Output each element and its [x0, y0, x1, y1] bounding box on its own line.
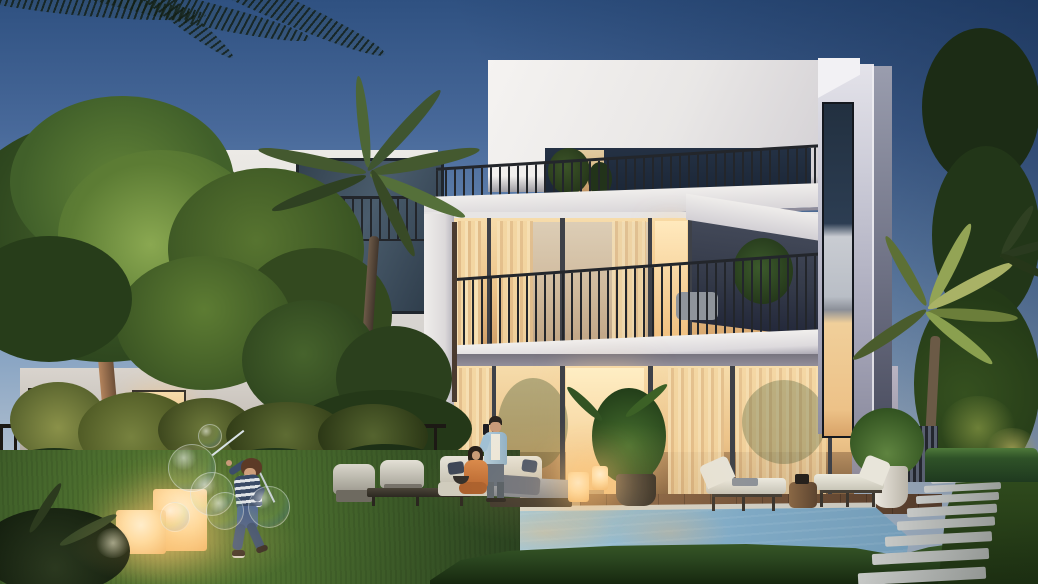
vignette — [0, 0, 1038, 584]
villa-dusk-render — [0, 0, 1038, 584]
